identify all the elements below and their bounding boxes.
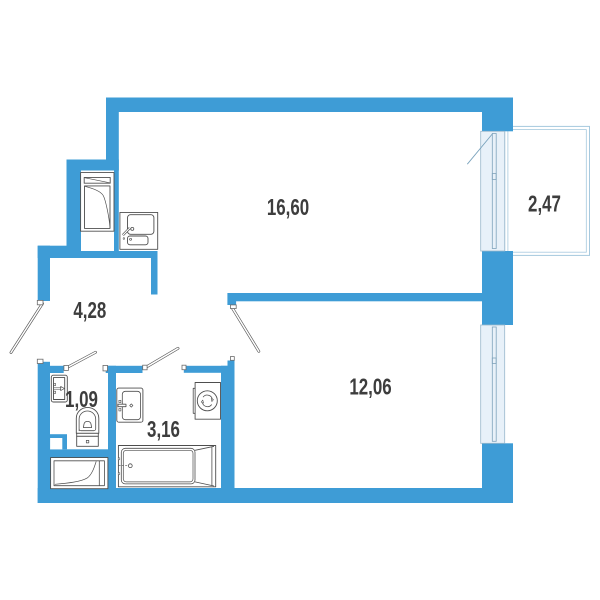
svg-text:4,28: 4,28: [73, 297, 106, 323]
svg-text:12,06: 12,06: [349, 374, 391, 400]
svg-text:3,16: 3,16: [147, 416, 180, 442]
svg-text:2,47: 2,47: [528, 191, 561, 217]
svg-text:1,09: 1,09: [65, 386, 98, 412]
svg-text:16,60: 16,60: [267, 194, 309, 220]
